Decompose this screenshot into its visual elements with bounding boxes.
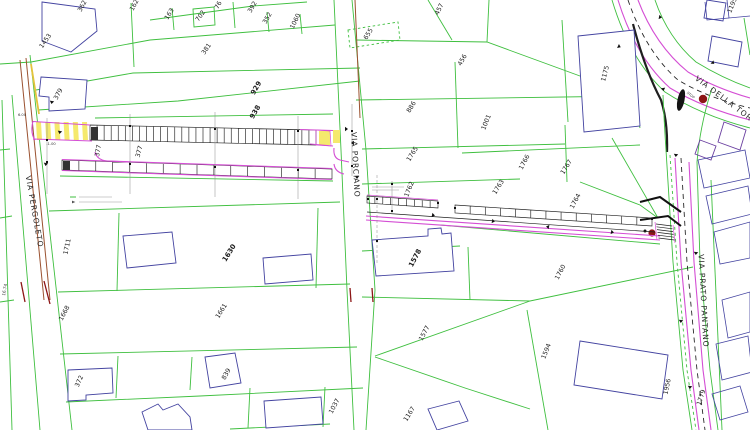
road-edge — [12, 95, 40, 430]
legend — [70, 197, 122, 203]
dimension-text: -1.00 — [46, 142, 56, 146]
parcel-number-label: 1764 — [569, 193, 583, 210]
zebra-crossing — [319, 131, 330, 145]
direction-arrow — [674, 154, 679, 157]
parcel-number-label: 456 — [457, 53, 469, 67]
dimension-text: STOP — [686, 91, 696, 100]
site-plan-svg: VIA PERGOLETOVIA PORCIANOVIA DELLA TORRE… — [0, 0, 750, 430]
hatched-strip — [455, 205, 652, 226]
parcel-number-label: 377 — [135, 145, 145, 158]
dimension-node — [367, 198, 369, 200]
dimension-node — [651, 218, 653, 220]
dimension-node — [129, 163, 131, 165]
cadastral-site-plan: VIA PERGOLETOVIA PORCIANOVIA DELLA TORRE… — [0, 0, 750, 430]
road-retaining-wall — [633, 24, 667, 152]
hatched-strip — [90, 125, 316, 145]
dimension-node — [437, 202, 439, 204]
dimension-text: 16.74 — [1, 283, 8, 296]
direction-arrow — [492, 219, 496, 224]
hatched-strip — [62, 160, 332, 179]
parcel-number-label: 1195 — [726, 0, 738, 14]
parcel-number-label: 377 — [94, 144, 103, 157]
street-labels: VIA PERGOLETOVIA PORCIANOVIA DELLA TORRE… — [24, 74, 750, 348]
parcel-number-label: 1167 — [403, 406, 417, 423]
zebra-stripe — [64, 122, 70, 140]
parcel-number-label: 381 — [200, 42, 213, 56]
zebra-stripe — [45, 122, 51, 140]
dimension-node — [214, 128, 216, 130]
parcel-number-label: 1763 — [492, 179, 506, 196]
parcel-number-label: 1001 — [480, 114, 492, 131]
parcel-number-label: 1668 — [58, 305, 72, 322]
parcel-number-label: 1766 — [518, 154, 532, 171]
dimension-node — [454, 207, 456, 209]
dimension-node — [391, 183, 393, 185]
street-name-label: VIA PORCIANO — [349, 132, 361, 198]
street-name-label: VIA PERGOLETO — [24, 175, 46, 248]
parcel-number-label: 392 — [247, 0, 259, 14]
zebra-stripe — [36, 122, 42, 140]
dimension-node — [46, 139, 48, 141]
parcel-number-label: 1577 — [418, 325, 432, 342]
zebra-crossing — [333, 130, 340, 143]
direction-arrow — [688, 386, 693, 389]
dimension-node — [297, 169, 299, 171]
parcel-number-label: 352 — [262, 11, 274, 25]
parcel-number-label: 1594 — [540, 343, 552, 360]
buildings — [39, 0, 746, 430]
direction-arrow — [43, 163, 48, 167]
direction-arrow — [345, 127, 348, 131]
parcel-number-label: 162 — [129, 0, 141, 12]
parcel-number-label: 1779 — [696, 389, 708, 406]
direction-arrow — [611, 230, 615, 235]
dimension-node — [129, 125, 131, 127]
dimension-node — [376, 240, 378, 242]
parcel-number-label: 1037 — [328, 398, 342, 415]
parcel-number-label: 163 — [164, 7, 176, 21]
parcel-number-label: 886 — [406, 100, 418, 114]
dimension-node — [46, 161, 48, 163]
curb-yellow-line — [31, 64, 39, 114]
parcel-number-label: 76 — [214, 0, 224, 10]
parcel-number-label: 938 — [248, 104, 262, 121]
parcel-number-label: 1767 — [560, 159, 574, 176]
parcel-number-label: 702 — [194, 9, 207, 23]
parcel-number-label: 1760 — [554, 264, 568, 281]
street-name-label: VIA PRATO PANTANO — [697, 254, 711, 348]
parcel-number-label: 1762 — [403, 181, 415, 198]
parcel-number-label: 929 — [249, 80, 263, 97]
dimension-text: 6.00 — [18, 113, 27, 117]
parcel-number-label: 1630 — [221, 243, 238, 264]
parcel-number-label: 457 — [434, 2, 446, 16]
dimension-markers — [46, 125, 653, 242]
parcel-number-label: 655 — [363, 27, 375, 41]
signal-dot — [699, 95, 707, 103]
parcel-number-label: 1711 — [62, 238, 72, 255]
parcel-number-label: 1661 — [215, 303, 229, 320]
dimension-node — [297, 130, 299, 132]
dimension-node — [376, 198, 378, 200]
dimension-node — [214, 166, 216, 168]
dimension-node — [391, 210, 393, 212]
